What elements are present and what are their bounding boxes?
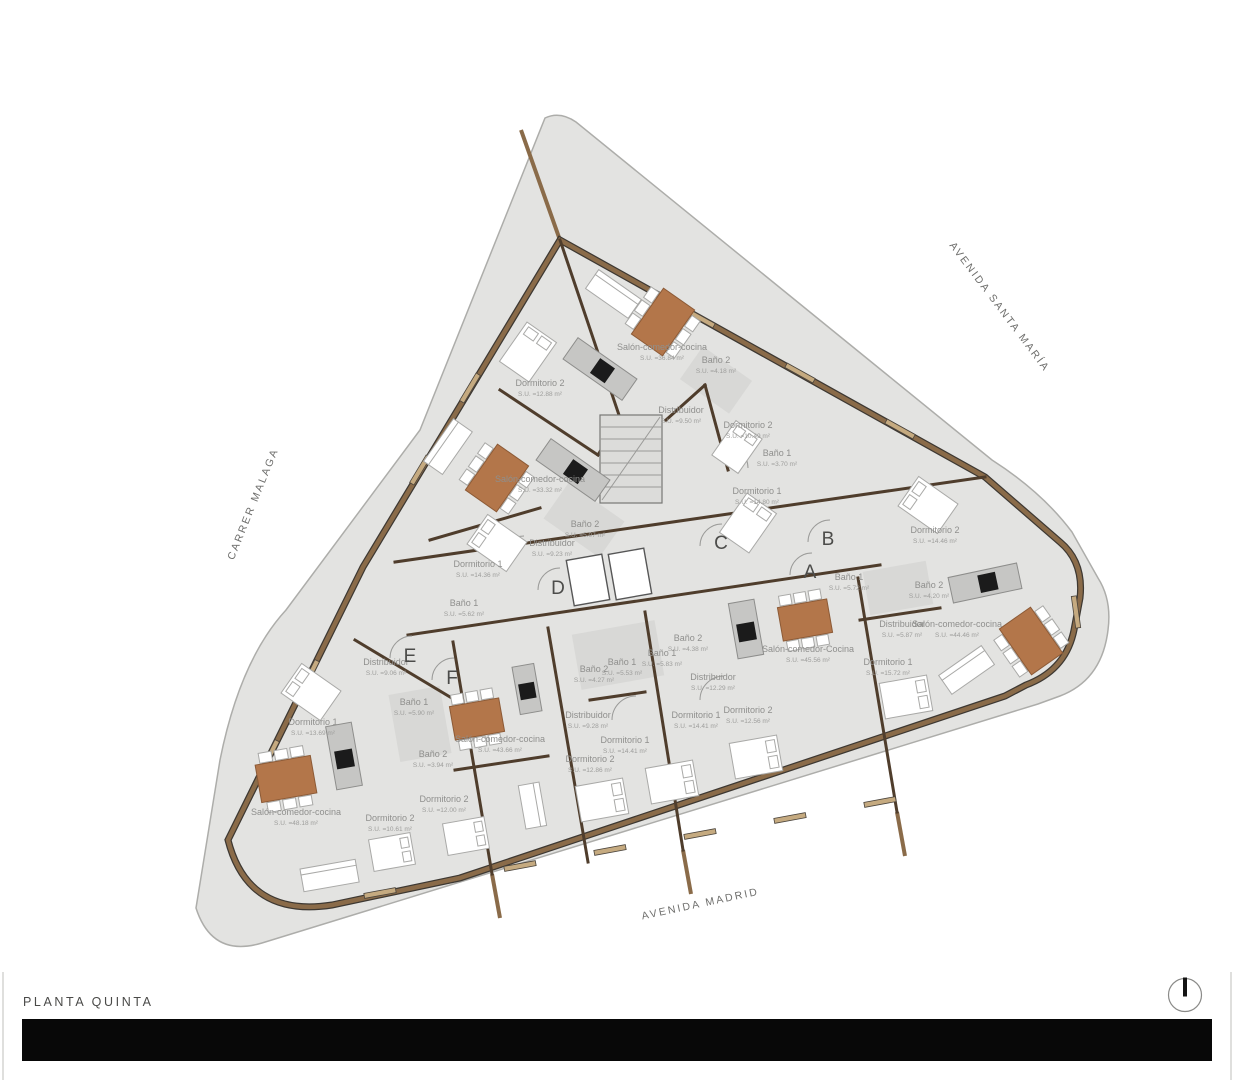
- room-area: S.U. =12.56 m²: [726, 718, 771, 725]
- room-label: Baño 1: [648, 648, 677, 658]
- street-avenida-santa-maria: AVENIDA SANTA MARÍA: [947, 239, 1053, 374]
- party-wall-extension: [492, 874, 500, 918]
- room-area: S.U. =43.66 m²: [478, 747, 523, 754]
- room-area: S.U. =10.61 m²: [368, 826, 413, 833]
- room-area: S.U. =4.18 m²: [696, 368, 737, 375]
- window: [684, 829, 716, 840]
- bed: [729, 735, 783, 779]
- room-area: S.U. =5.62 m²: [444, 611, 485, 618]
- room-label: Distribuidor: [658, 405, 704, 415]
- room-area: S.U. =10.49 m²: [726, 433, 771, 440]
- room-label: Dormitorio 1: [863, 657, 912, 667]
- room-label: Baño 2: [419, 749, 448, 759]
- room-area: S.U. =44.46 m²: [935, 632, 980, 639]
- room-area: S.U. =3.70 m²: [757, 461, 798, 468]
- room-area: S.U. =4.27 m²: [574, 677, 615, 684]
- room-label: Baño 2: [571, 519, 600, 529]
- room-label: Dormitorio 1: [600, 735, 649, 745]
- core-letter-c: C: [714, 533, 728, 554]
- room-label: Dormitorio 2: [723, 705, 772, 715]
- room-area: S.U. =12.29 m²: [691, 685, 736, 692]
- room-label: Dormitorio 2: [910, 525, 959, 535]
- room-label: Dormitorio 2: [365, 813, 414, 823]
- room-area: S.U. =13.69 m²: [291, 730, 336, 737]
- room-area: S.U. =45.56 m²: [786, 657, 831, 664]
- room-label: Distribuidor: [690, 672, 736, 682]
- core-letter-a: A: [804, 562, 817, 583]
- room-label: Baño 2: [674, 633, 703, 643]
- window: [864, 797, 896, 808]
- room-label: Baño 2: [702, 355, 731, 365]
- room-label: Dormitorio 1: [732, 486, 781, 496]
- room-area: S.U. =33.32 m²: [518, 487, 563, 494]
- bed: [575, 778, 629, 822]
- core-letter-b: B: [822, 529, 835, 550]
- room-area: S.U. =4.20 m²: [909, 593, 950, 600]
- sheet-footer: PLANTA QUINTA: [3, 972, 1231, 1080]
- room-label: Dormitorio 2: [723, 420, 772, 430]
- party-wall-extension: [897, 812, 905, 856]
- room-area: S.U. =9.23 m²: [532, 551, 573, 558]
- room-area: S.U. =12.88 m²: [518, 391, 563, 398]
- room-area: S.U. =9.28 m²: [568, 723, 609, 730]
- room-label: Baño 1: [763, 448, 792, 458]
- core-letter-d: D: [551, 578, 565, 599]
- bed: [645, 760, 699, 804]
- floor-plan-canvas: Salón-comedor-cocinaS.U. =36.84 m² Dormi…: [0, 0, 1236, 1080]
- room-area: S.U. =36.84 m²: [640, 355, 685, 362]
- room-label: Baño 1: [400, 697, 429, 707]
- room-label: Salón-comedor-Cocina: [762, 644, 854, 654]
- room-area: S.U. =14.46 m²: [913, 538, 958, 545]
- room-label: Distribuidor: [529, 538, 575, 548]
- bed: [879, 675, 933, 719]
- page-title: PLANTA QUINTA: [23, 995, 154, 1009]
- street-carrer-malaga: CARRER MALAGA: [225, 446, 281, 561]
- room-label: Salón-comedor-cocina: [617, 342, 707, 352]
- room-area: S.U. =3.94 m²: [413, 762, 454, 769]
- room-area: S.U. =5.87 m²: [882, 632, 923, 639]
- room-area: S.U. =14.80 m²: [735, 499, 780, 506]
- room-area: S.U. =14.36 m²: [456, 572, 501, 579]
- compass-needle: [1183, 978, 1187, 997]
- room-area: S.U. =5.72 m²: [829, 585, 870, 592]
- room-area: S.U. =12.86 m²: [568, 767, 613, 774]
- elevator: [608, 548, 651, 600]
- room-area: S.U. =5.83 m²: [642, 661, 683, 668]
- title-bar-redacted: [22, 1019, 1212, 1061]
- room-area: S.U. =12.00 m²: [422, 807, 467, 814]
- room-area: S.U. =14.41 m²: [674, 723, 719, 730]
- room-label: Baño 1: [608, 657, 637, 667]
- room-area: S.U. =5.90 m²: [394, 710, 435, 717]
- room-area: S.U. =48.18 m²: [274, 820, 319, 827]
- north-compass: [1169, 978, 1202, 1012]
- room-label: Salón-comedor-cocina: [251, 807, 341, 817]
- room-label: Baño 1: [450, 598, 479, 608]
- room-label: Dormitorio 1: [671, 710, 720, 720]
- room-area: S.U. =9.06 m²: [366, 670, 407, 677]
- room-label: Dormitorio 2: [515, 378, 564, 388]
- room-label: Dormitorio 1: [288, 717, 337, 727]
- core-letter-e: E: [404, 646, 417, 667]
- room-label: Baño 2: [580, 664, 609, 674]
- bed: [443, 817, 490, 856]
- plot-outline: [196, 115, 1109, 946]
- room-label: Dormitorio 2: [565, 754, 614, 764]
- room-label: Dormitorio 2: [419, 794, 468, 804]
- room-label: Salón-comedor-cocina: [495, 474, 585, 484]
- elevator: [566, 554, 609, 606]
- room-label: Distribuidor: [565, 710, 611, 720]
- room-label: Dormitorio 1: [453, 559, 502, 569]
- room-label: Salón-comedor-cocina: [912, 619, 1002, 629]
- room-label: Baño 2: [915, 580, 944, 590]
- window: [594, 845, 626, 856]
- room-area: S.U. =15.72 m²: [866, 670, 911, 677]
- room-label: Baño 1: [835, 572, 864, 582]
- bed: [369, 833, 416, 872]
- core-letter-f: F: [446, 668, 458, 689]
- room-label: Salón-comedor-cocina: [455, 734, 545, 744]
- room-label: Distribuidor: [363, 657, 409, 667]
- party-wall-extension: [683, 850, 691, 894]
- room-area: S.U. =9.50 m²: [661, 418, 702, 425]
- street-avenida-madrid: AVENIDA MADRID: [641, 886, 761, 923]
- window: [774, 813, 806, 824]
